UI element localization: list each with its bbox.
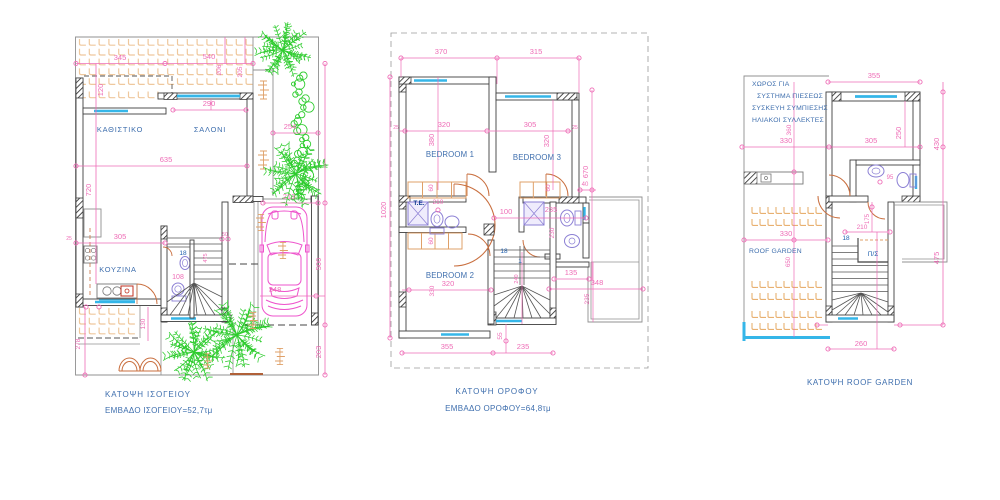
svg-text:Π/Σ: Π/Σ	[868, 251, 879, 258]
svg-text:720: 720	[84, 184, 93, 197]
svg-text:670: 670	[581, 166, 590, 179]
svg-text:540: 540	[203, 52, 216, 61]
svg-text:330: 330	[780, 229, 793, 238]
svg-text:370: 370	[435, 47, 448, 56]
svg-text:348: 348	[591, 278, 604, 287]
svg-text:500: 500	[314, 258, 323, 271]
svg-text:210: 210	[857, 224, 868, 231]
svg-text:240: 240	[514, 274, 520, 283]
svg-text:BEDROOM 1: BEDROOM 1	[426, 150, 474, 159]
svg-text:25: 25	[66, 236, 72, 242]
svg-text:205: 205	[237, 66, 244, 77]
svg-text:18: 18	[179, 250, 187, 257]
svg-text:254: 254	[284, 122, 297, 131]
svg-text:25: 25	[393, 125, 399, 131]
svg-text:345: 345	[114, 53, 127, 62]
svg-text:55: 55	[497, 332, 504, 340]
svg-text:ΣΑΛΟΝΙ: ΣΑΛΟΝΙ	[194, 125, 226, 134]
svg-text:635: 635	[160, 155, 173, 164]
svg-text:130: 130	[140, 318, 147, 329]
svg-text:60: 60	[545, 184, 552, 192]
svg-text:135: 135	[565, 268, 578, 277]
svg-text:25: 25	[572, 125, 578, 131]
svg-text:T.E.: T.E.	[413, 200, 424, 207]
svg-text:213: 213	[283, 192, 296, 201]
svg-text:315: 315	[530, 47, 543, 56]
svg-text:235: 235	[517, 342, 530, 351]
svg-text:380: 380	[427, 134, 436, 147]
svg-text:1020: 1020	[379, 202, 388, 219]
svg-text:260: 260	[855, 339, 868, 348]
svg-text:320: 320	[542, 135, 551, 148]
svg-text:120: 120	[96, 84, 105, 97]
svg-text:360: 360	[786, 124, 793, 135]
svg-text:348: 348	[269, 285, 282, 294]
svg-text:290: 290	[203, 99, 216, 108]
svg-text:ΚΑΤΟΨΗ ΟΡΟΦΟΥ: ΚΑΤΟΨΗ ΟΡΟΦΟΥ	[456, 387, 539, 396]
svg-text:175: 175	[865, 213, 871, 224]
svg-text:278: 278	[75, 338, 82, 349]
svg-text:ΚΑΘΙΣΤΙΚΟ: ΚΑΘΙΣΤΙΚΟ	[97, 125, 143, 134]
svg-text:355: 355	[868, 71, 881, 80]
svg-text:305: 305	[524, 120, 537, 129]
svg-text:330: 330	[429, 285, 436, 296]
svg-text:40: 40	[582, 182, 589, 188]
svg-text:18: 18	[500, 248, 508, 255]
svg-text:206: 206	[216, 64, 223, 75]
svg-text:650: 650	[786, 256, 792, 267]
svg-text:BEDROOM 3: BEDROOM 3	[513, 153, 561, 162]
svg-text:203: 203	[314, 346, 323, 359]
svg-text:1: 1	[518, 258, 522, 265]
svg-text:235: 235	[545, 205, 558, 214]
svg-text:230: 230	[549, 227, 556, 238]
svg-text:60: 60	[428, 184, 435, 192]
svg-text:ΚΑΤΟΨΗ ΙΣΟΓΕΙΟΥ: ΚΑΤΟΨΗ ΙΣΟΓΕΙΟΥ	[105, 390, 191, 399]
svg-text:305: 305	[114, 232, 127, 241]
svg-text:250: 250	[894, 127, 903, 140]
svg-text:18: 18	[842, 235, 850, 242]
svg-text:475: 475	[932, 252, 941, 265]
svg-text:60: 60	[428, 237, 435, 245]
svg-text:235: 235	[584, 293, 591, 304]
svg-text:330: 330	[780, 136, 793, 145]
svg-text:100: 100	[500, 207, 513, 216]
svg-text:ΣΥΣΤΗΜΑ ΠΙΕΣΕΩΣ: ΣΥΣΤΗΜΑ ΠΙΕΣΕΩΣ	[757, 93, 823, 100]
svg-text:430: 430	[932, 138, 941, 151]
svg-text:320: 320	[442, 279, 455, 288]
svg-text:95: 95	[887, 175, 894, 181]
svg-text:210: 210	[433, 199, 444, 206]
svg-text:ΗΛΙΑΚΟΙ ΣΥΛΛΕΚΤΕΣ: ΗΛΙΑΚΟΙ ΣΥΛΛΕΚΤΕΣ	[752, 117, 824, 124]
svg-text:ΕΜΒΑΔΟ ΟΡΟΦΟΥ=64,8τμ: ΕΜΒΑΔΟ ΟΡΟΦΟΥ=64,8τμ	[445, 404, 551, 413]
svg-text:ROOF GARDEN: ROOF GARDEN	[749, 248, 802, 255]
svg-text:ΚΟΥΖΙΝΑ: ΚΟΥΖΙΝΑ	[99, 265, 137, 274]
svg-text:305: 305	[865, 136, 878, 145]
svg-text:ΧΩΡΟΣ ΓΙΑ: ΧΩΡΟΣ ΓΙΑ	[752, 81, 790, 88]
svg-text:475: 475	[203, 253, 209, 262]
svg-text:320: 320	[438, 120, 451, 129]
svg-text:50: 50	[222, 232, 228, 238]
svg-text:BEDROOM 2: BEDROOM 2	[426, 271, 474, 280]
svg-text:355: 355	[441, 342, 454, 351]
svg-text:108: 108	[172, 274, 184, 281]
svg-text:ΕΜΒΑΔΟ ΙΣΟΓΕΙΟΥ=52,7τμ: ΕΜΒΑΔΟ ΙΣΟΓΕΙΟΥ=52,7τμ	[105, 406, 213, 415]
svg-text:ΣΥΣΚΕΥΗ ΣΥΜΠΙΕΣΗΣ: ΣΥΣΚΕΥΗ ΣΥΜΠΙΕΣΗΣ	[752, 105, 828, 112]
svg-text:ΚΑΤΟΨΗ ROOF GARDEN: ΚΑΤΟΨΗ ROOF GARDEN	[807, 378, 913, 387]
